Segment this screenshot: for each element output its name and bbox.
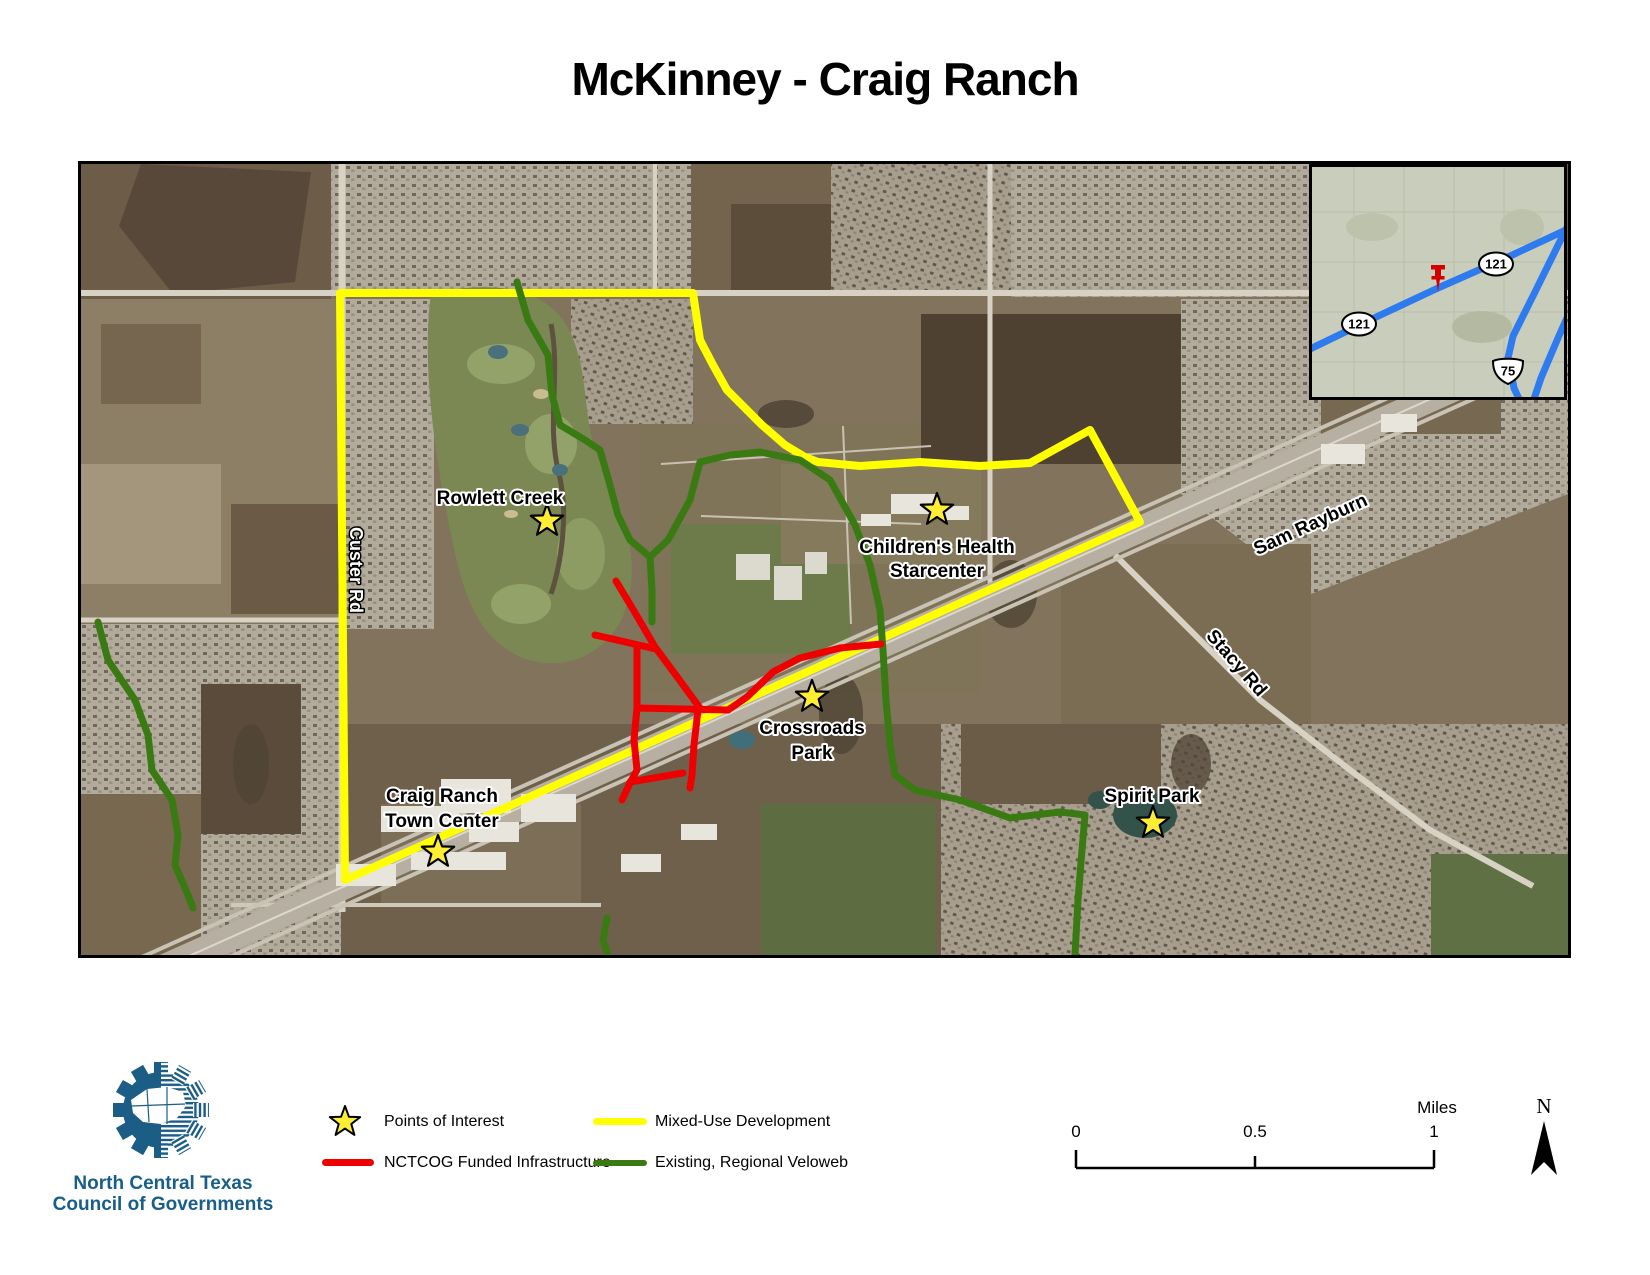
inset-map-canvas: 121 121 75 — [1312, 167, 1564, 397]
nctcog-gear-icon — [83, 1056, 243, 1168]
label-craig-ranch-2: Town Center — [385, 811, 499, 832]
legend-nctcog: NCTCOG Funded Infrastructure — [384, 1154, 611, 1172]
points-of-interest-icon — [326, 1103, 364, 1141]
label-childrens-health-1: Children's Health — [859, 537, 1015, 558]
nctcog-line-swatch — [322, 1159, 374, 1166]
label-crossroads-1: Crossroads — [759, 718, 865, 739]
svg-text:121: 121 — [1485, 257, 1507, 272]
north-arrow-icon — [1522, 1119, 1566, 1179]
north-label: N — [1522, 1094, 1566, 1119]
logo-text-line2: Council of Governments — [48, 1194, 278, 1215]
nctcog-logo: North Central Texas Council of Governmen… — [48, 1056, 278, 1215]
label-spirit-park: Spirit Park — [1104, 786, 1199, 807]
veloweb-line-swatch — [593, 1160, 647, 1166]
legend-veloweb: Existing, Regional Veloweb — [655, 1154, 848, 1172]
label-crossroads-2: Park — [791, 743, 833, 764]
main-map: Rowlett Creek Children's Health Starcent… — [78, 161, 1571, 958]
map-page: McKinney - Craig Ranch — [0, 0, 1650, 1275]
locator-inset-map: 121 121 75 — [1309, 164, 1567, 400]
mixed-use-line-swatch — [593, 1118, 647, 1125]
legend-points-of-interest: Points of Interest — [384, 1113, 504, 1131]
scale-bar-ruler — [1066, 1146, 1446, 1174]
svg-text:75: 75 — [1501, 364, 1515, 379]
scale-tick-05: 0.5 — [1243, 1122, 1267, 1142]
label-custer-rd: Custer Rd — [346, 527, 366, 613]
legend-mixed-use: Mixed-Use Development — [655, 1113, 830, 1131]
logo-text-line1: North Central Texas — [48, 1173, 278, 1194]
scale-tick-0: 0 — [1071, 1122, 1080, 1142]
north-arrow: N — [1522, 1094, 1566, 1184]
label-childrens-health-2: Starcenter — [890, 561, 985, 582]
page-title: McKinney - Craig Ranch — [0, 52, 1650, 106]
inset-route-shield-121-b: 121 — [1342, 313, 1376, 336]
scale-unit-label: Miles — [1417, 1098, 1457, 1118]
scale-tick-1: 1 — [1429, 1122, 1438, 1142]
inset-route-shield-121-a: 121 — [1479, 253, 1513, 276]
svg-text:121: 121 — [1348, 317, 1370, 332]
label-rowlett-creek: Rowlett Creek — [437, 488, 564, 509]
label-craig-ranch-1: Craig Ranch — [386, 786, 498, 807]
